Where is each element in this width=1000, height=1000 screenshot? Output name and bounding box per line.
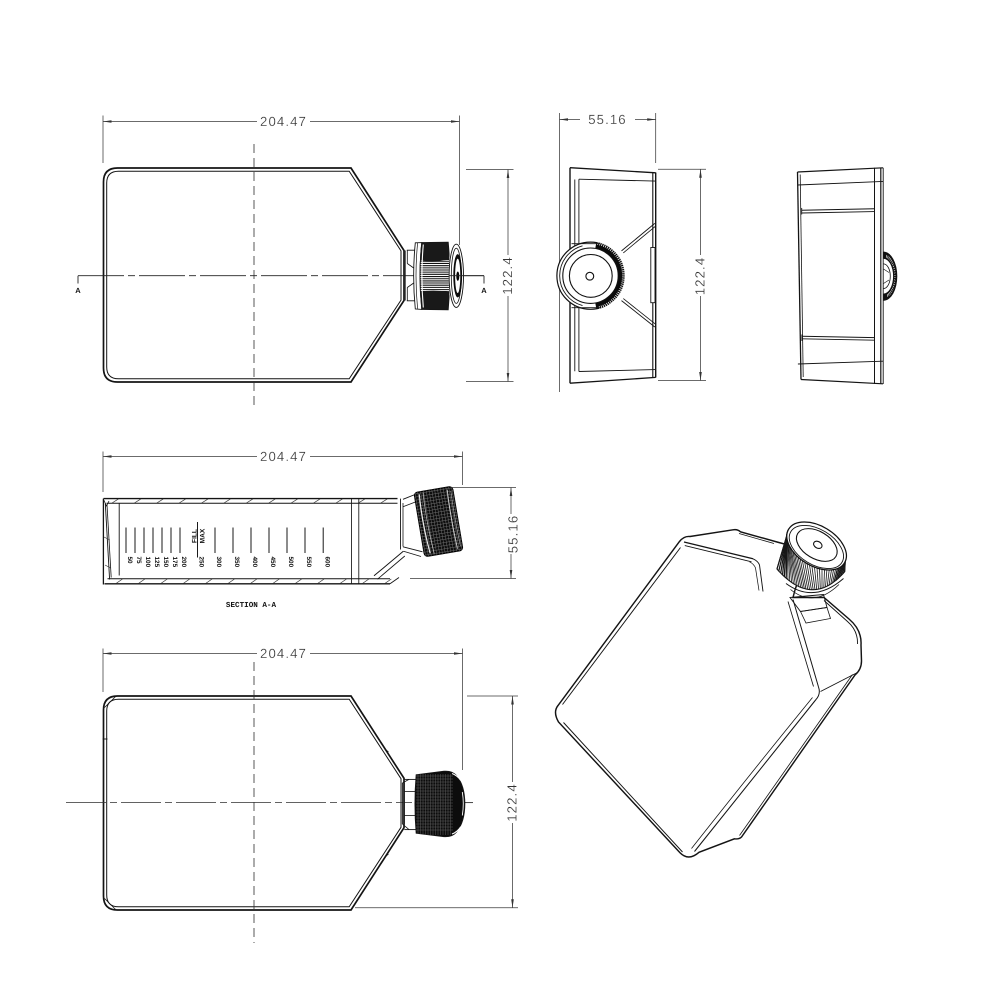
svg-text:55.16: 55.16 xyxy=(588,112,627,127)
svg-text:450: 450 xyxy=(269,557,276,568)
svg-text:122.4: 122.4 xyxy=(500,256,515,295)
svg-text:75: 75 xyxy=(135,557,142,565)
svg-text:600: 600 xyxy=(323,557,330,568)
svg-text:350: 350 xyxy=(233,557,240,568)
svg-text:204.47: 204.47 xyxy=(260,449,307,464)
svg-text:A: A xyxy=(481,286,487,295)
svg-text:55.16: 55.16 xyxy=(506,515,521,554)
svg-text:122.4: 122.4 xyxy=(505,783,520,822)
svg-text:122.4: 122.4 xyxy=(693,257,708,296)
svg-text:100: 100 xyxy=(144,557,151,568)
svg-text:550: 550 xyxy=(305,557,312,568)
svg-text:500: 500 xyxy=(287,557,294,568)
svg-text:250: 250 xyxy=(198,557,205,568)
svg-text:150: 150 xyxy=(162,557,169,568)
svg-text:SECTION A-A: SECTION A-A xyxy=(226,601,277,610)
svg-text:50: 50 xyxy=(126,557,133,565)
svg-text:175: 175 xyxy=(171,557,178,568)
svg-text:MAX: MAX xyxy=(200,528,207,543)
svg-text:300: 300 xyxy=(215,557,222,568)
svg-text:A: A xyxy=(75,286,81,295)
svg-text:204.47: 204.47 xyxy=(260,114,307,129)
svg-text:400: 400 xyxy=(251,557,258,568)
svg-text:125: 125 xyxy=(153,557,160,568)
svg-text:200: 200 xyxy=(180,557,187,568)
svg-text:FILL: FILL xyxy=(192,529,199,543)
svg-text:204.47: 204.47 xyxy=(260,646,307,661)
